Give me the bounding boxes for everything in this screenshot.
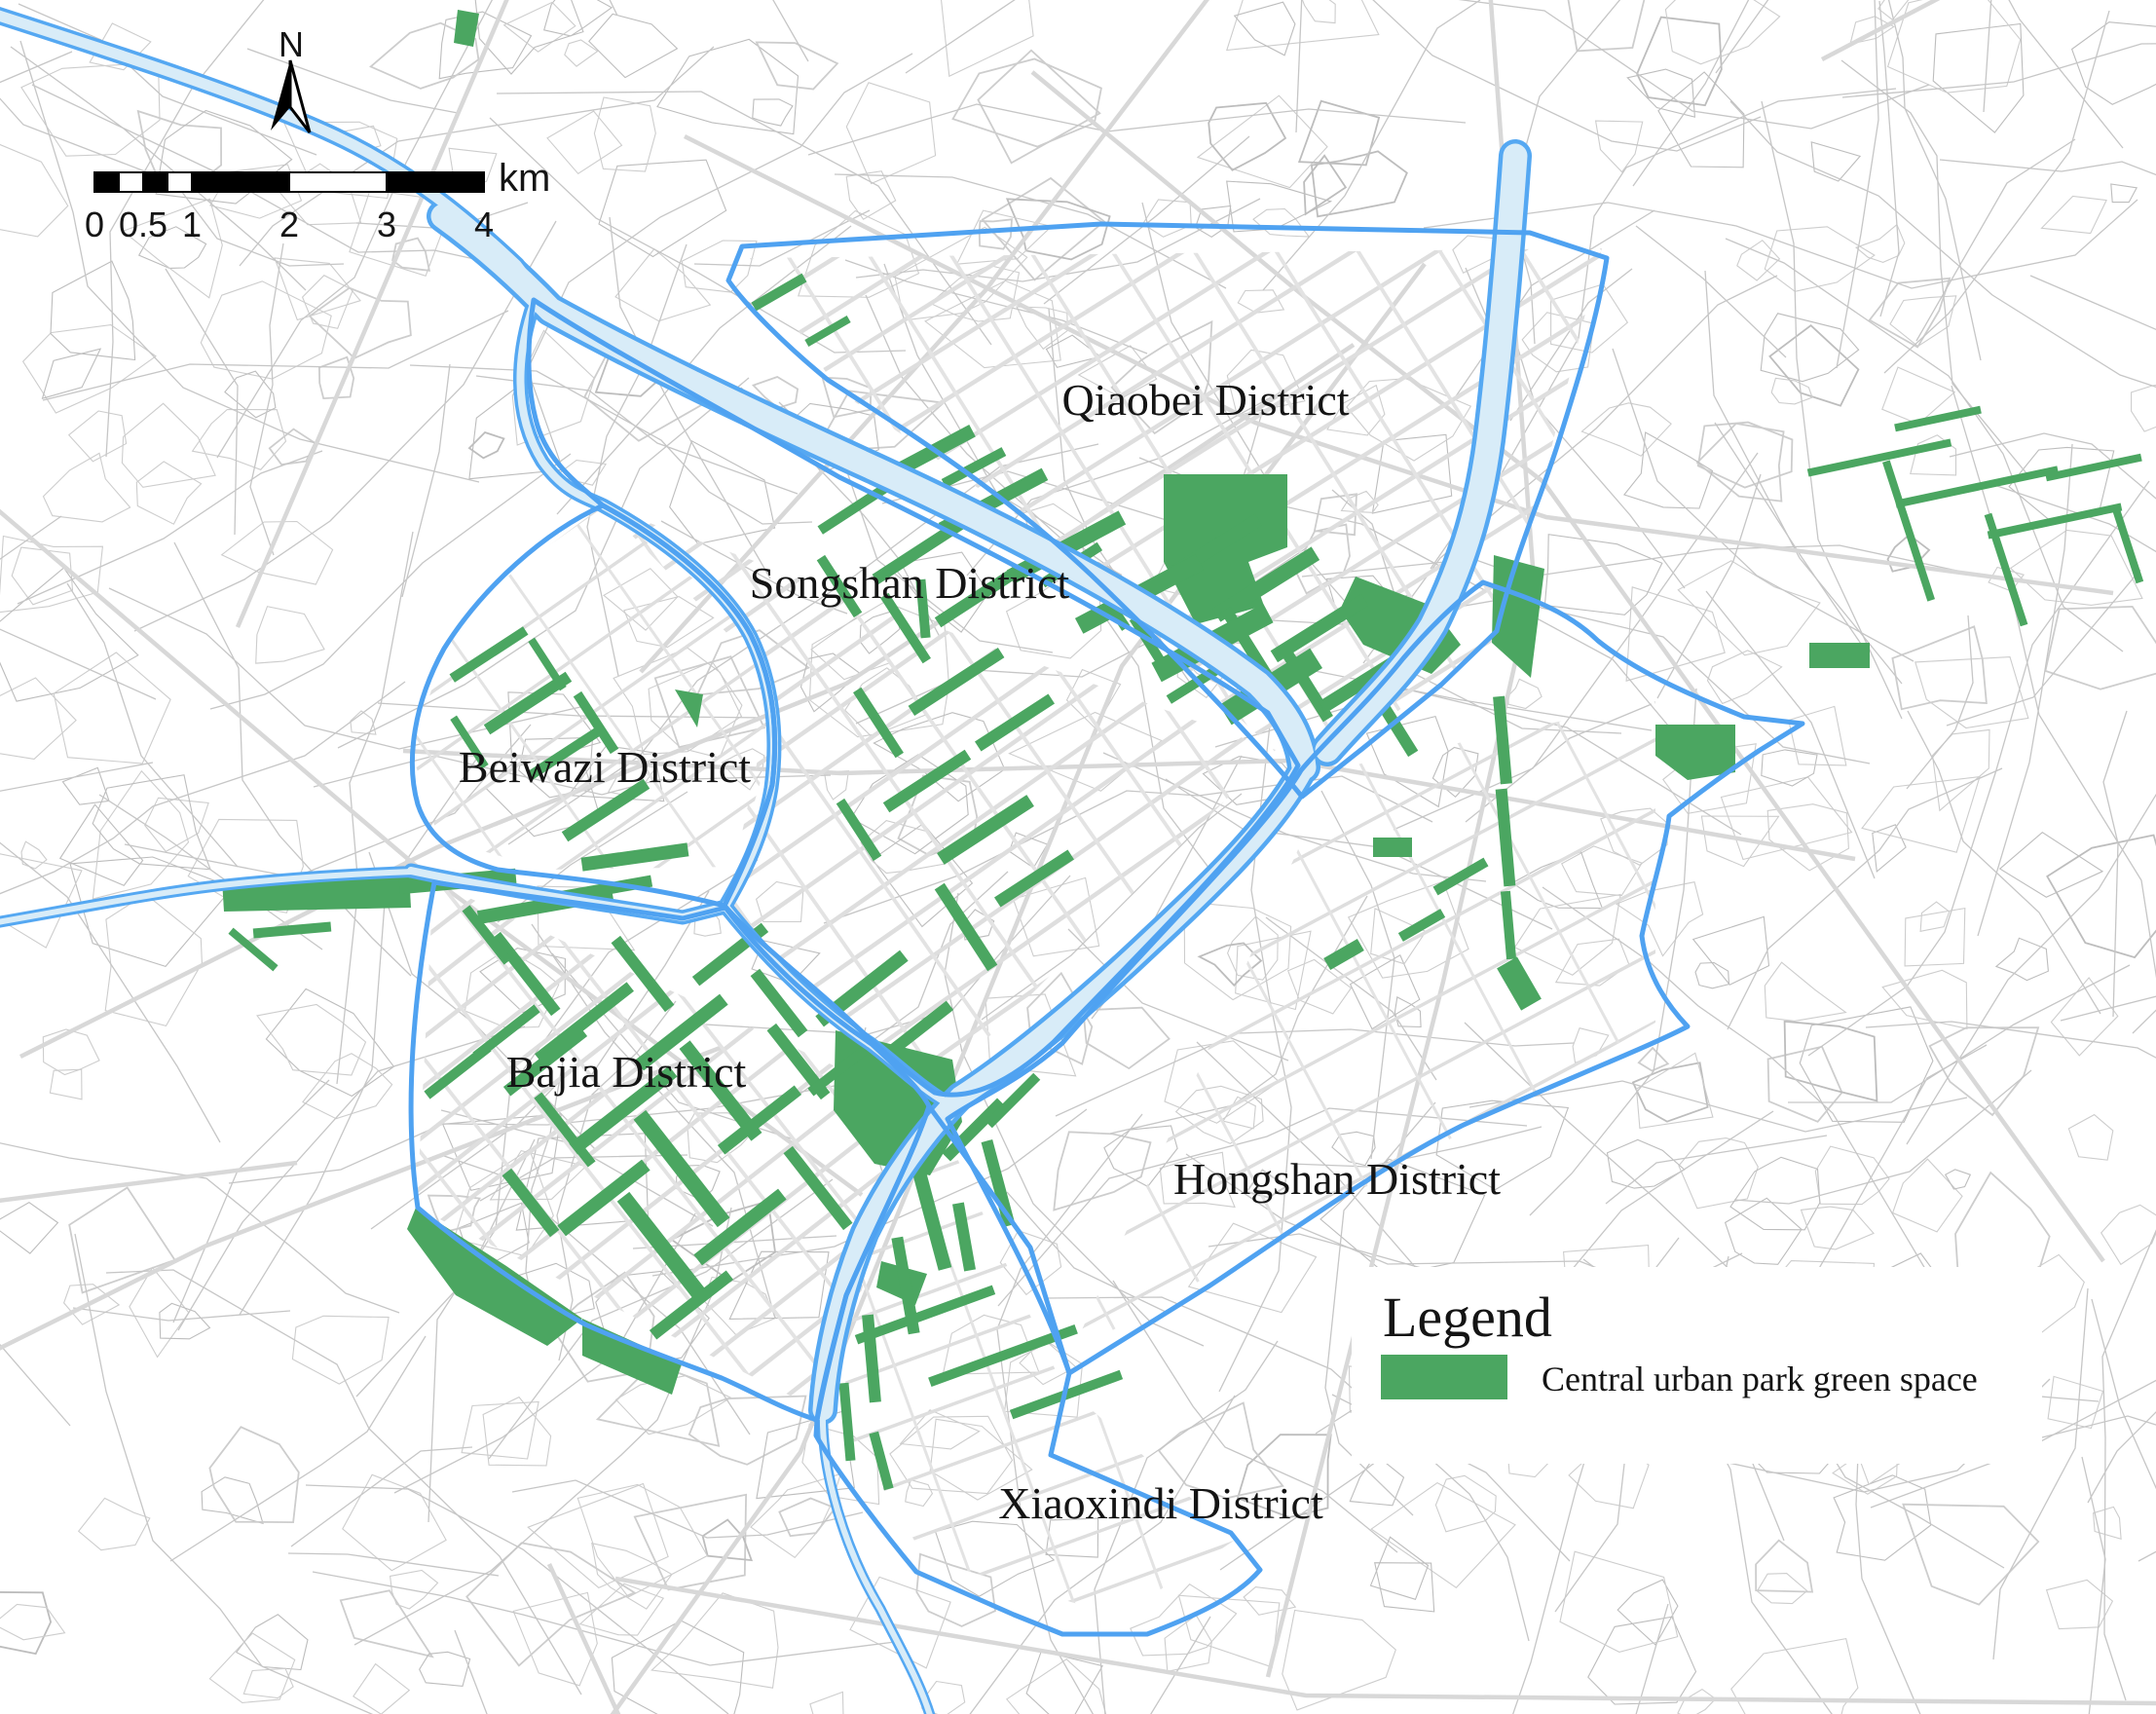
scale-tick-3: 3 [377,205,396,244]
legend-item-label: Central urban park green space [1542,1360,1978,1398]
district-label-qiaobei: Qiaobei District [1061,375,1349,425]
legend: Legend Central urban park green space [1352,1267,2042,1464]
scale-tick-2: 2 [279,205,299,244]
district-label-beiwazi: Beiwazi District [459,742,751,792]
scale-segment [119,172,143,192]
district-label-songshan: Songshan District [750,558,1070,608]
district-label-bajia: Bajia District [506,1047,747,1097]
park-green-swatch [1381,1355,1507,1399]
scale-tick-05: 0.5 [119,205,167,244]
scale-segment [94,172,119,192]
map-figure: Qiaobei District Songshan District Beiwa… [0,0,2156,1714]
north-label: N [279,24,304,64]
legend-title: Legend [1383,1285,1552,1349]
scale-segment [387,172,484,192]
scale-tick-4: 4 [474,205,494,244]
city-district-map: Qiaobei District Songshan District Beiwa… [0,0,2156,1714]
scale-unit-label: km [499,157,550,200]
scale-segment [192,172,289,192]
district-label-xiaoxindi: Xiaoxindi District [998,1478,1323,1528]
district-label-hongshan: Hongshan District [1173,1154,1501,1204]
scale-segment [167,172,192,192]
scale-tick-1: 1 [182,205,202,244]
scale-tick-0: 0 [85,205,104,244]
scale-segment [289,172,387,192]
scale-segment [143,172,167,192]
